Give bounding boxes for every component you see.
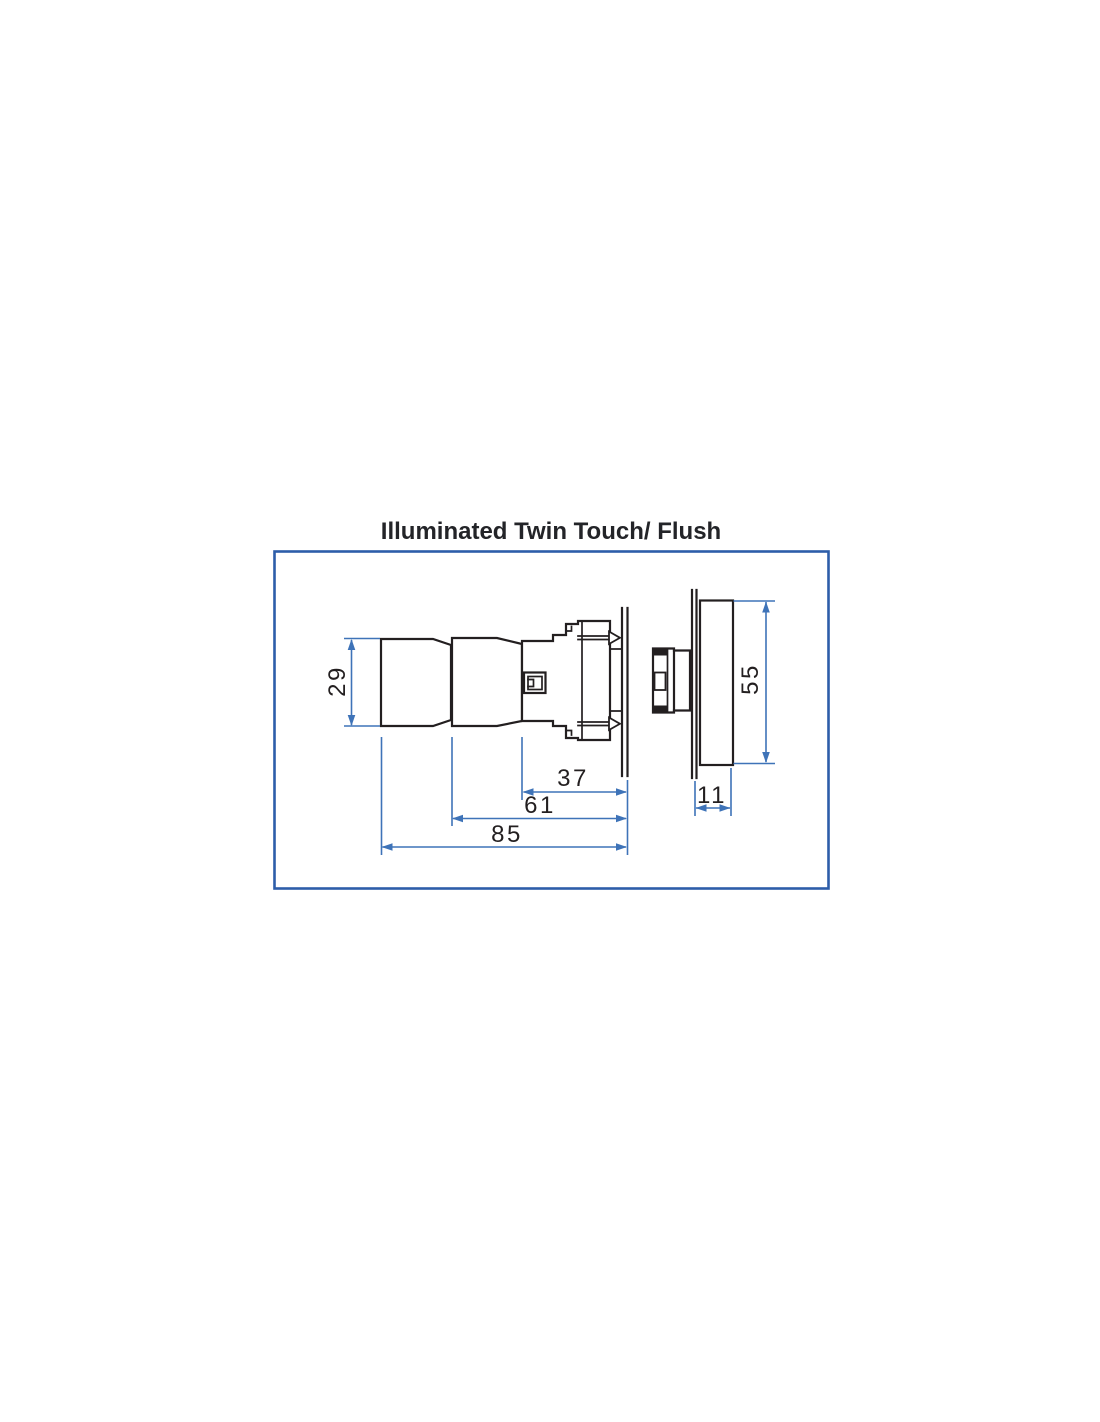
connector-notch	[655, 673, 666, 691]
rear-connector	[653, 649, 690, 713]
connector-tab-top	[654, 649, 668, 656]
bezel-panel	[692, 590, 697, 778]
button-side-view	[381, 608, 628, 776]
front-body-depth-dim-label: 37	[557, 767, 589, 791]
overall-depth-dim-label: 85	[491, 823, 523, 847]
bezel-plate	[700, 601, 733, 766]
button-barrel	[452, 638, 522, 726]
clip-arrow-top	[609, 632, 620, 645]
page: Illuminated Twin Touch/ Flush	[0, 0, 1100, 1422]
connector-tab-bottom	[654, 706, 668, 713]
flush-bezel-view	[653, 590, 733, 778]
bezel-height-dim-label: 55	[739, 663, 763, 695]
barrel-depth-dim-label: 61	[524, 794, 556, 818]
bezel-depth-dim-label: 11	[697, 784, 727, 808]
mounting-panel	[622, 608, 628, 776]
technical-drawing	[0, 0, 1100, 1422]
neck-lines	[610, 649, 622, 711]
cap-height-dim-label: 29	[326, 665, 350, 697]
button-cap	[381, 639, 451, 726]
clip-arrow-bottom	[609, 718, 620, 731]
